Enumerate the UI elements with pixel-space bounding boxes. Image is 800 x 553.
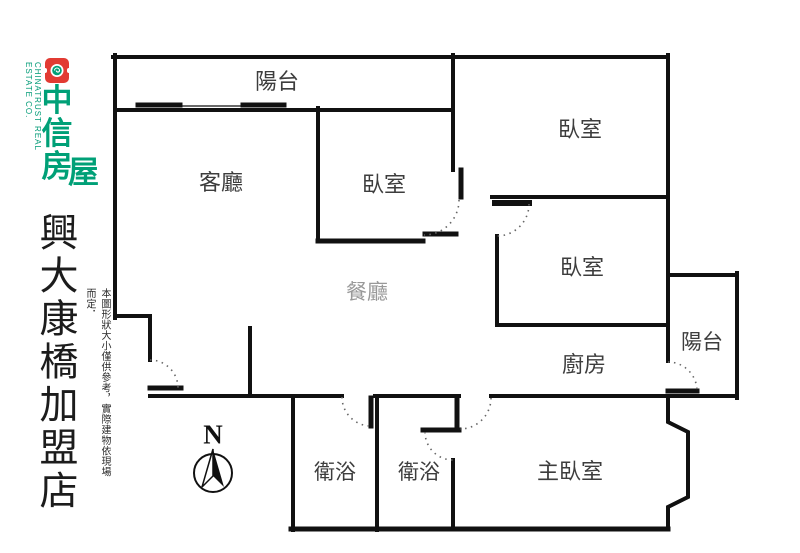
room-label-balcony-top: 陽台 — [255, 64, 299, 96]
room-label-master-bedroom: 主臥室 — [537, 454, 603, 486]
room-label-bathroom-right: 衛浴 — [398, 456, 440, 486]
bay-window — [668, 396, 688, 529]
room-label-living-room: 客廳 — [199, 165, 243, 197]
room-label-bedroom-mid-right: 臥室 — [560, 250, 604, 282]
room-label-kitchen: 廚房 — [562, 347, 606, 379]
room-label-balcony-right: 陽台 — [681, 326, 723, 356]
room-label-bedroom-center: 臥室 — [362, 167, 406, 199]
room-label-bedroom-top-right: 臥室 — [558, 112, 602, 144]
compass-north-label: N — [203, 420, 223, 451]
sliding-door — [138, 105, 284, 106]
room-label-dining-room: 餐廳 — [346, 276, 388, 306]
floorplan-page: CHINATRUST REAL ESTATE CO. 中信房 屋 興大康橋加盟店… — [0, 0, 800, 553]
room-label-bathroom-left: 衛浴 — [314, 456, 356, 486]
door-leaves — [150, 203, 697, 426]
compass-icon — [194, 449, 232, 492]
